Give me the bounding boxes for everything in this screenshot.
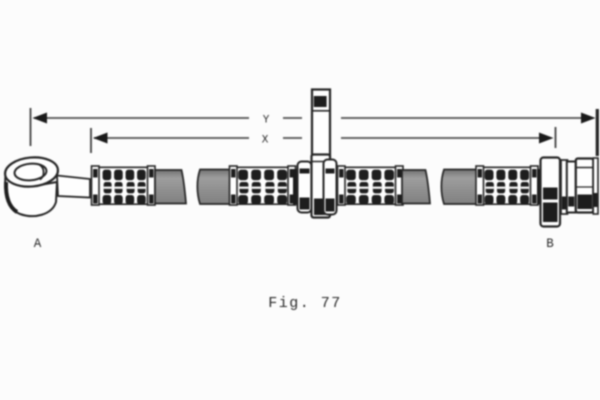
svg-text:Fig. 77: Fig. 77	[268, 295, 342, 312]
svg-text:X: X	[262, 135, 269, 147]
svg-text:A: A	[34, 237, 42, 251]
svg-text:B: B	[546, 237, 554, 251]
svg-text:Y: Y	[263, 115, 270, 127]
